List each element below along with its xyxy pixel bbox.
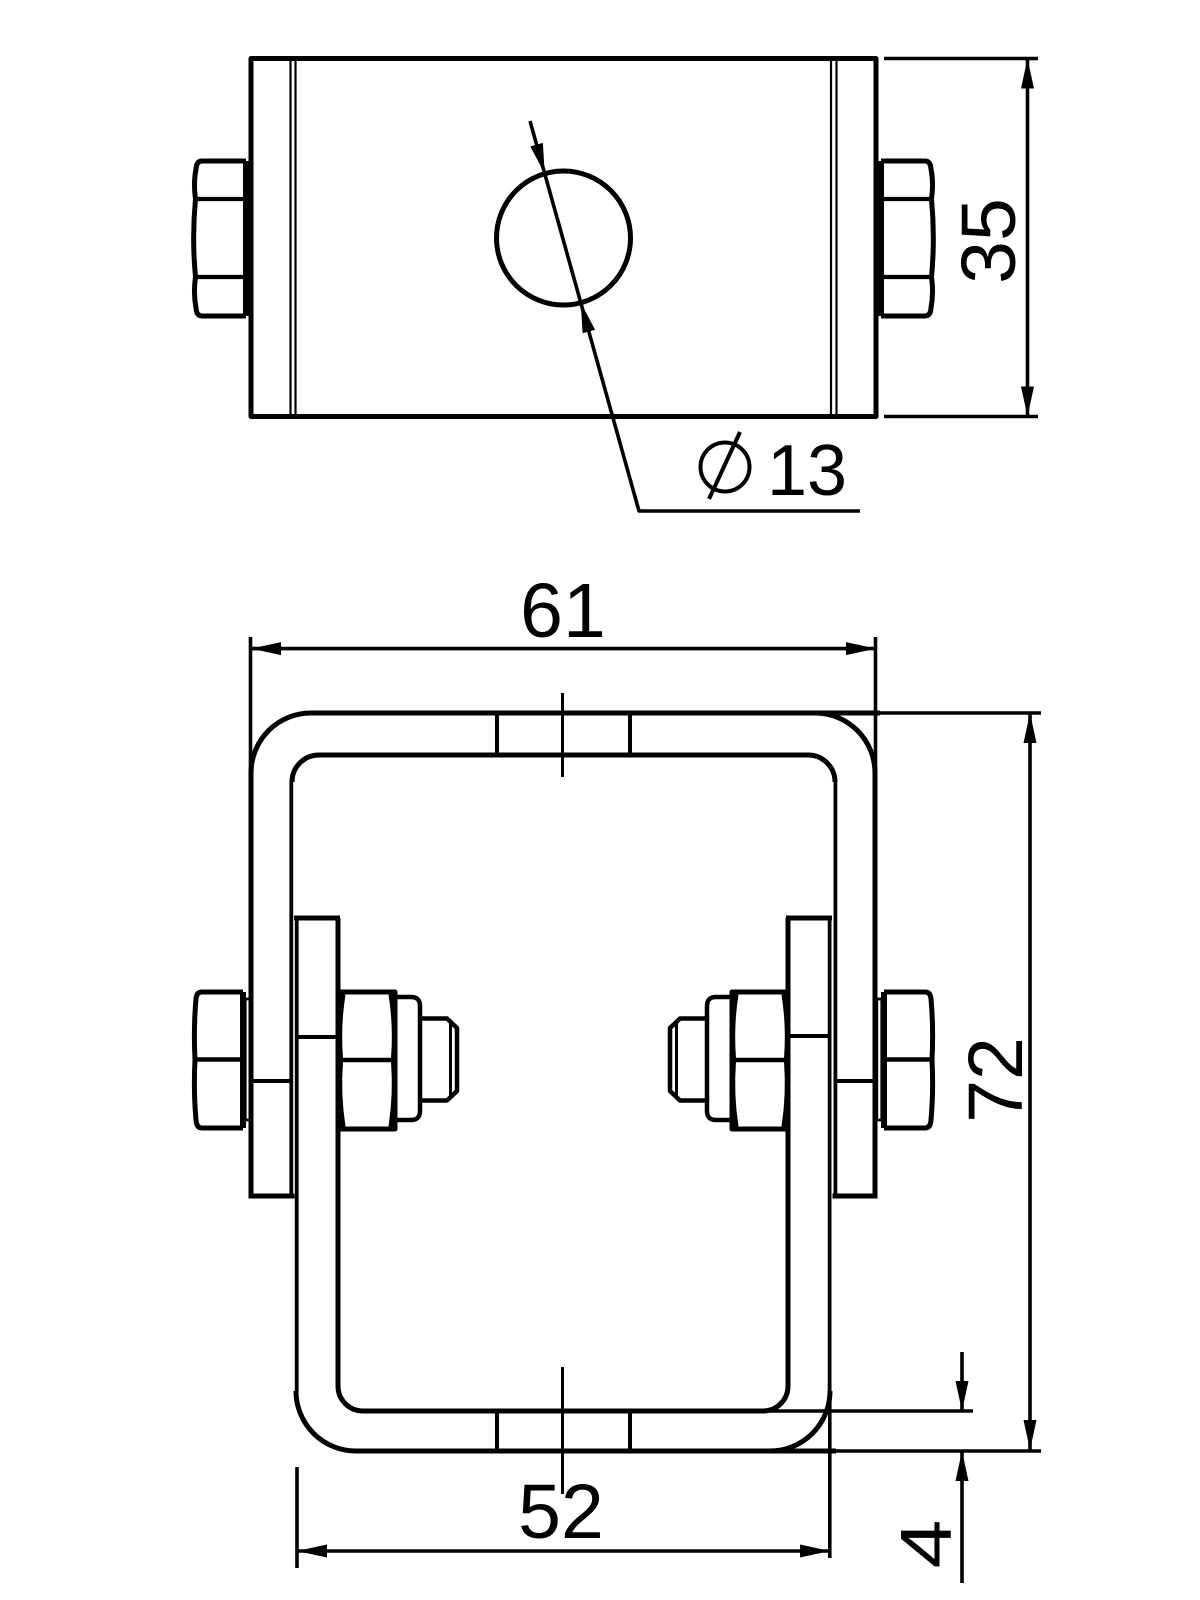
svg-text:61: 61 xyxy=(520,568,606,654)
svg-text:4: 4 xyxy=(886,1520,967,1569)
svg-text:13: 13 xyxy=(767,431,847,511)
svg-text:35: 35 xyxy=(946,198,1032,284)
svg-text:52: 52 xyxy=(518,1469,604,1555)
svg-text:72: 72 xyxy=(953,1037,1039,1123)
